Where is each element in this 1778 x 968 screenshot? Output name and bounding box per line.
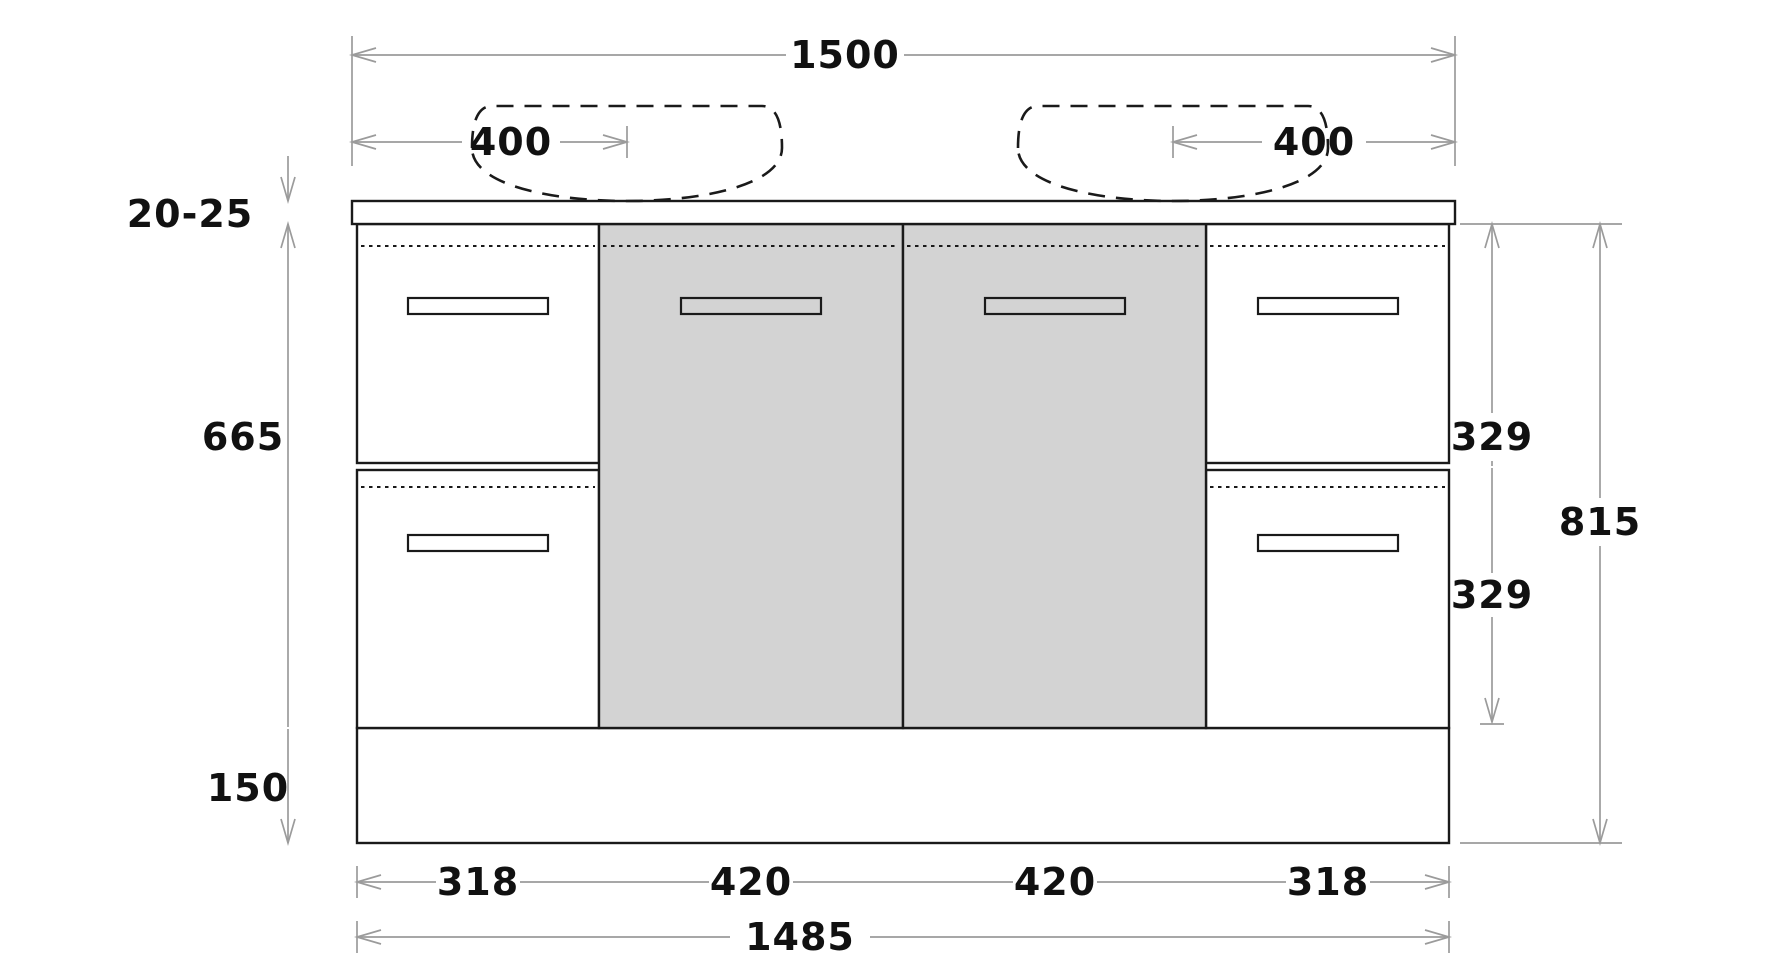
label-overall-height: 815 — [1559, 500, 1641, 544]
handle-door-left — [681, 298, 821, 314]
handle-drawer-left-bottom — [408, 535, 548, 551]
label-section-4: 318 — [1287, 860, 1369, 904]
label-section-1: 318 — [437, 860, 519, 904]
label-top-thickness: 20-25 — [127, 192, 254, 236]
vanity-dimension-drawing: 1500 400 400 20-25 665 150 329 329 815 3… — [0, 0, 1778, 968]
handle-drawer-left-top — [408, 298, 548, 314]
countertop — [352, 201, 1455, 224]
basin-center-ticks — [627, 126, 1173, 158]
handle-drawer-right-bottom — [1258, 535, 1398, 551]
handle-drawer-right-top — [1258, 298, 1398, 314]
drawer-left-bottom — [357, 470, 599, 728]
label-upper-drawer: 329 — [1451, 415, 1533, 459]
label-basin-right: 400 — [1273, 120, 1355, 164]
label-section-3: 420 — [1014, 860, 1096, 904]
label-base-width: 1485 — [745, 915, 855, 959]
label-kick-height: 150 — [207, 766, 289, 810]
label-overall-width: 1500 — [790, 33, 900, 77]
cabinet-elevation — [352, 106, 1455, 843]
label-section-2: 420 — [710, 860, 792, 904]
drawer-right-top — [1206, 224, 1449, 463]
drawer-left-top — [357, 224, 599, 463]
kickboard — [357, 728, 1449, 843]
label-lower-drawer: 329 — [1451, 573, 1533, 617]
label-basin-left: 400 — [470, 120, 552, 164]
label-body-height: 665 — [202, 415, 284, 459]
drawer-right-bottom — [1206, 470, 1449, 728]
bottom-dim-ticks — [357, 866, 1449, 953]
drawing-canvas: 1500 400 400 20-25 665 150 329 329 815 3… — [0, 0, 1778, 968]
handle-door-right — [985, 298, 1125, 314]
